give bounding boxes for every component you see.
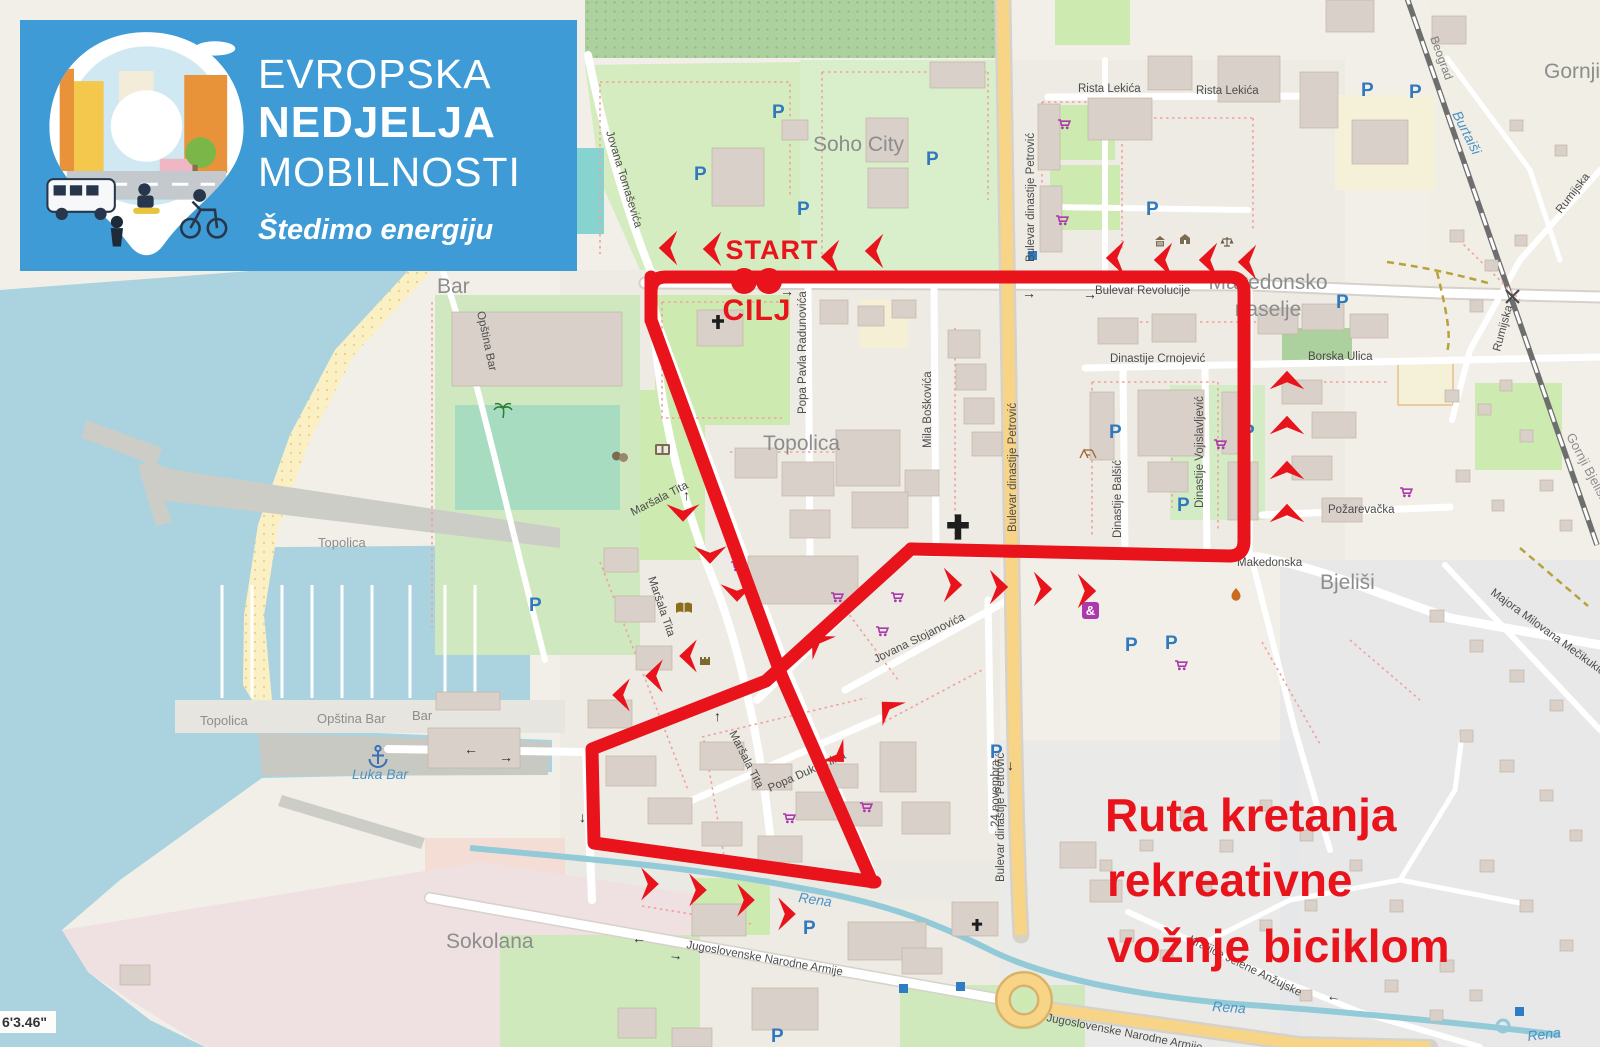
street-label: Popa Pavla Radunovića xyxy=(797,291,809,414)
place-label: Bjeliši xyxy=(1320,571,1375,594)
parking-icon: P xyxy=(1409,82,1422,103)
street-label: 24 novembra xyxy=(990,759,1002,827)
route-caption-line3: vožnje biciklom xyxy=(1107,923,1450,969)
svg-text:↑: ↑ xyxy=(714,708,721,724)
parking-icon: P xyxy=(1336,292,1349,313)
parking-icon: P xyxy=(1361,80,1374,101)
route-caption-line1: Ruta kretanja xyxy=(1105,792,1396,838)
bus-icon xyxy=(47,179,114,220)
mobility-week-banner: EVROPSKA NEDJELJA MOBILNOSTI Štedimo ene… xyxy=(20,20,577,271)
svg-text:↓: ↓ xyxy=(1007,757,1014,773)
bus-stop-icon xyxy=(1515,1007,1524,1016)
cinema-icon xyxy=(655,444,670,455)
parking-icon: P xyxy=(1165,633,1178,654)
parking-icon: P xyxy=(1177,495,1190,516)
route-start-dot xyxy=(731,268,757,294)
parking-icon: P xyxy=(1125,635,1138,656)
route-caption-line2: rekreativne xyxy=(1107,857,1353,903)
place-label: Opština Bar xyxy=(317,711,386,726)
street-label: Rista Lekića xyxy=(1196,85,1259,97)
mobility-week-pin-logo xyxy=(34,28,259,268)
map-screenshot: & P P P P P P P P P P P P P P P P P → → … xyxy=(0,0,1600,1047)
pedestrian-icon xyxy=(111,216,123,247)
place-label: Soho City xyxy=(813,133,905,156)
street-label: Bulevar dinastije Petrović xyxy=(1025,133,1037,262)
place-label: Gornji B xyxy=(1544,60,1600,83)
pin-hole xyxy=(111,90,182,161)
parking-icon: P xyxy=(1146,199,1159,220)
place-label: Topolica xyxy=(200,713,248,728)
route-finish-label: CILJ xyxy=(722,294,791,327)
svg-text:→: → xyxy=(1022,285,1036,301)
svg-text:→: → xyxy=(499,749,513,765)
place-label: Topolica xyxy=(763,432,840,455)
street-label: Bulevar Revolucije xyxy=(1095,285,1190,297)
parking-icon: P xyxy=(1109,422,1122,443)
parking-icon: P xyxy=(926,149,939,170)
banner-tagline: Štedimo energiju xyxy=(258,214,521,247)
street-label: Borska Ulica xyxy=(1308,351,1373,363)
place-label: Bar xyxy=(412,708,433,723)
banner-title-line1: EVROPSKA xyxy=(258,50,521,98)
amenity-icon: & xyxy=(1082,602,1099,619)
street-label: Požarevačka xyxy=(1328,504,1395,516)
parking-icon: P xyxy=(529,595,542,616)
svg-text:←: ← xyxy=(632,930,646,946)
library-icon xyxy=(676,603,692,614)
svg-text:&: & xyxy=(1086,603,1095,618)
street-label: Mila Boškovića xyxy=(922,371,934,448)
route-start-label: START xyxy=(726,235,819,265)
place-label: Topolica xyxy=(318,535,366,550)
water-label: Luka Bar xyxy=(352,766,409,782)
parking-icon: P xyxy=(797,199,810,220)
street-label: Dinastije Crnojević xyxy=(1110,353,1205,365)
street-label: Makedonska xyxy=(1237,557,1303,569)
place-label: Bar xyxy=(437,275,470,298)
banner-title-line3: MOBILNOSTI xyxy=(258,148,521,196)
street-label: Bulevar dinastije Petrović xyxy=(1007,403,1019,532)
parking-icon: P xyxy=(771,1026,784,1047)
parking-icon: P xyxy=(694,164,707,185)
street-label: Dinastije Balšić xyxy=(1112,460,1124,538)
banner-title-line2: NEDJELJA xyxy=(258,98,521,148)
svg-text:←: ← xyxy=(464,741,478,757)
street-label: Rista Lekića xyxy=(1078,83,1141,95)
banner-text: EVROPSKA NEDJELJA MOBILNOSTI Štedimo ene… xyxy=(258,50,521,247)
svg-text:←: ← xyxy=(1326,987,1342,1005)
place-label: Sokolana xyxy=(446,930,534,953)
svg-text:→: → xyxy=(668,946,684,964)
parking-icon: P xyxy=(772,102,785,123)
bus-stop-icon xyxy=(956,982,965,991)
bus-stop-icon xyxy=(899,984,908,993)
castle-icon xyxy=(700,657,710,665)
water-label: Rena xyxy=(1212,998,1247,1016)
svg-text:↓: ↓ xyxy=(579,809,586,825)
street-label: Dinastije Vojislavljević xyxy=(1194,396,1206,508)
parking-icon: P xyxy=(803,918,816,939)
corner-coordinates: 6'3.46" xyxy=(0,1011,56,1033)
route-finish-dot xyxy=(756,268,782,294)
